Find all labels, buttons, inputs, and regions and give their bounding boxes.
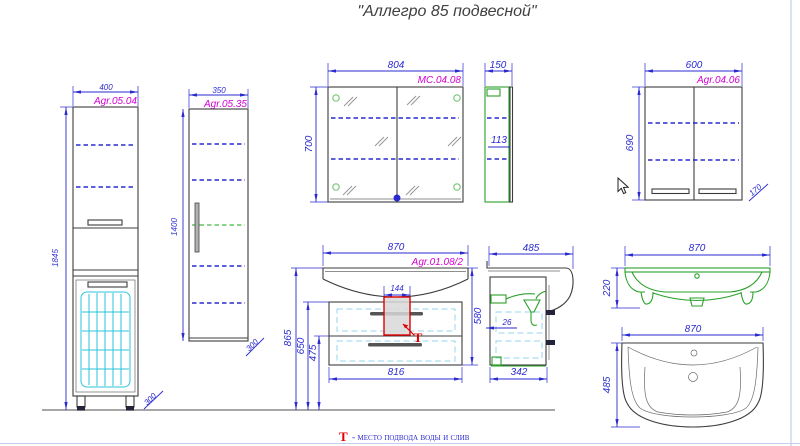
view-mirror-cabinet-side: 150 113 bbox=[485, 60, 513, 202]
label-wall-code: Agr.04.06 bbox=[696, 75, 740, 86]
dim-vanity-width: 870 bbox=[388, 242, 405, 253]
dim-slim-width: 350 bbox=[212, 86, 226, 95]
dim-basin-top-width: 870 bbox=[685, 324, 702, 335]
view-wall-cabinet: 600 Agr.04.06 690 170 bbox=[625, 60, 768, 201]
drawing-title: "Аллегро 85 подвесной" bbox=[357, 3, 538, 20]
dim-wall-width: 600 bbox=[686, 60, 703, 71]
view-mirror-cabinet-front: 804 MC.04.08 700 bbox=[304, 60, 463, 202]
view-washbasin-front: 870 220 bbox=[602, 243, 770, 308]
siphon-cutout bbox=[384, 297, 410, 335]
legend: Т - место подвода воды и слив bbox=[339, 429, 470, 444]
dim-slim-depth: 300 bbox=[244, 337, 260, 353]
dim-vanity-side-body-depth: 342 bbox=[511, 367, 528, 378]
mirror-hatch-marks bbox=[343, 96, 461, 195]
door-knob bbox=[394, 195, 401, 202]
drawing-canvas[interactable]: "Аллегро 85 подвесной" 400 Agr.05.04 bbox=[0, 0, 800, 446]
cad-drawing: "Аллегро 85 подвесной" 400 Agr.05.04 bbox=[0, 0, 800, 446]
dim-tall-width: 400 bbox=[99, 83, 113, 92]
dim-basin-top-depth: 485 bbox=[602, 376, 613, 393]
water-marker-symbol: Т bbox=[414, 330, 423, 345]
view-washbasin-top: 870 485 bbox=[602, 324, 763, 427]
dim-wall-depth: 170 bbox=[747, 182, 763, 198]
view-vanity-front: 870 Agr.01.08/2 144 Т 580 865 650 475 bbox=[283, 242, 484, 410]
dim-wall-height: 690 bbox=[625, 134, 636, 151]
dim-tall-height: 1845 bbox=[51, 249, 60, 267]
dim-vanity-side-depth: 485 bbox=[523, 243, 540, 254]
label-vanity-code: Agr.01.08/2 bbox=[411, 257, 464, 268]
laundry-basket bbox=[81, 292, 130, 387]
view-slim-cabinet: 350 Agr.05.35 1400 300 bbox=[170, 86, 264, 356]
dim-siphon-cutout: 144 bbox=[390, 284, 404, 293]
dim-mirror-width: 804 bbox=[388, 60, 405, 71]
plumbing bbox=[491, 291, 546, 366]
view-vanity-side: 485 26 342 bbox=[486, 243, 573, 383]
mouse-cursor bbox=[618, 178, 628, 194]
legend-text: - место подвода воды и слив bbox=[352, 433, 470, 443]
label-slim-code: Agr.05.35 bbox=[203, 99, 247, 110]
view-tall-cabinet: 400 Agr.05.04 1845 300 bbox=[51, 83, 163, 411]
dim-vanity-height-total: 865 bbox=[283, 329, 294, 346]
legend-symbol: Т bbox=[339, 429, 348, 444]
dim-basin-front-height: 220 bbox=[602, 279, 613, 297]
dim-mirror-depth: 150 bbox=[490, 60, 507, 71]
dim-vanity-height-divider: 475 bbox=[308, 344, 319, 361]
dim-vanity-body-height: 580 bbox=[473, 307, 484, 324]
dim-basin-front-width: 870 bbox=[689, 243, 706, 254]
dim-vanity-inner-width: 816 bbox=[388, 367, 405, 378]
dim-slim-height: 1400 bbox=[170, 218, 179, 236]
dim-mirror-side-inner: 113 bbox=[491, 135, 507, 146]
dim-vanity-height-body: 650 bbox=[296, 337, 307, 354]
dim-vanity-side-gap: 26 bbox=[502, 318, 512, 327]
label-tall-code: Agr.05.04 bbox=[93, 96, 137, 107]
dim-tall-depth: 300 bbox=[142, 391, 158, 407]
label-mirror-code: MC.04.08 bbox=[418, 75, 462, 86]
dim-mirror-height: 700 bbox=[304, 135, 315, 152]
